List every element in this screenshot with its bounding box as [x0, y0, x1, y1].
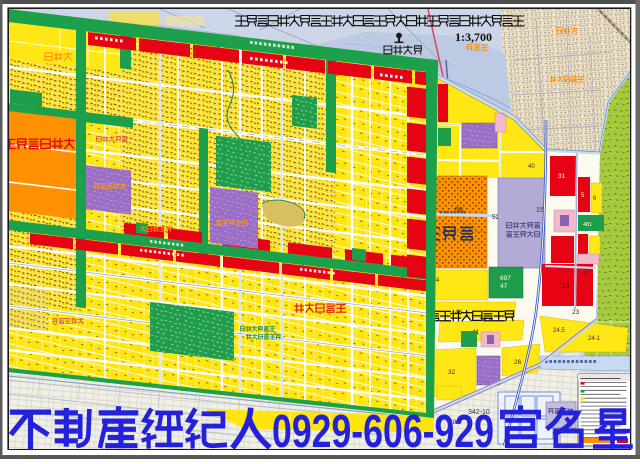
svg-text:24.5: 24.5 [553, 328, 565, 334]
svg-text:47: 47 [500, 283, 508, 290]
svg-text:40: 40 [528, 164, 535, 170]
svg-text:481: 481 [583, 222, 592, 228]
svg-text:1:3,700: 1:3,700 [455, 30, 492, 44]
svg-text:24-1: 24-1 [588, 336, 601, 342]
svg-text:32: 32 [448, 369, 456, 376]
svg-text:52: 52 [492, 214, 500, 221]
svg-text:26: 26 [514, 359, 522, 366]
svg-text:19: 19 [583, 270, 590, 276]
svg-text:21: 21 [562, 283, 570, 290]
svg-text:23: 23 [572, 309, 580, 316]
svg-text:0929-606-929: 0929-606-929 [272, 405, 494, 457]
svg-text:15: 15 [536, 207, 544, 214]
svg-text:697: 697 [500, 275, 511, 282]
svg-text:31: 31 [558, 173, 566, 180]
